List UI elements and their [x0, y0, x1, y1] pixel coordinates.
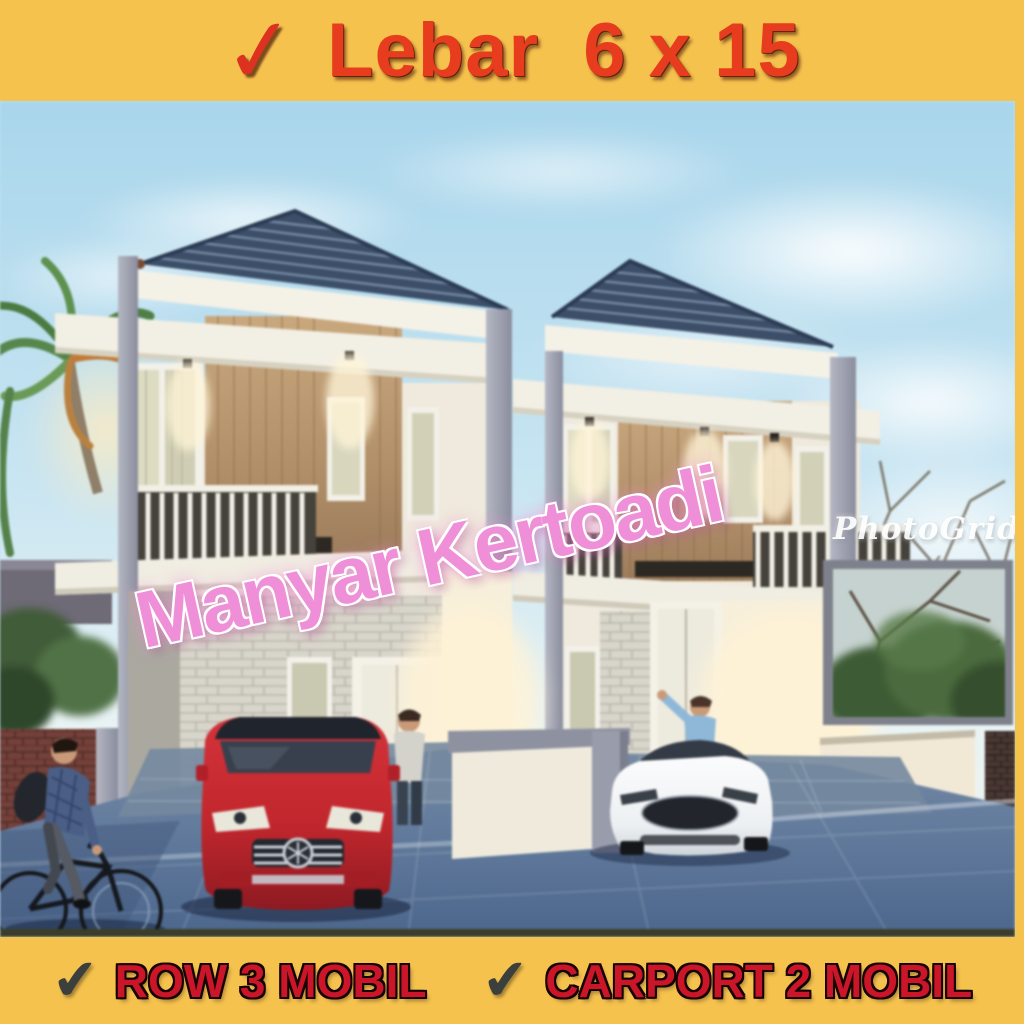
red-checkmark-icon: ✓ [219, 3, 302, 98]
divider-wall [448, 728, 630, 859]
black-checkmark-icon: ✔ [481, 951, 532, 1010]
feature-text: ROW 3 MOBIL [115, 954, 427, 1008]
feature-carport-2-mobil: ✔ CARPORT 2 MOBIL [482, 953, 972, 1009]
red-suv [181, 717, 411, 922]
black-checkmark-icon: ✔ [50, 951, 101, 1010]
promo-image-frame: ✓ Lebar 6 x 15 [0, 0, 1024, 1024]
top-banner: ✓ Lebar 6 x 15 [0, 0, 1024, 101]
feature-row-3-mobil: ✔ ROW 3 MOBIL [52, 953, 427, 1009]
house-rendering-photo: Manyar Kertoadi PhotoGrid [0, 101, 1015, 937]
feature-text: CARPORT 2 MOBIL [545, 954, 972, 1008]
bottom-banner: ✔ ROW 3 MOBIL ✔ CARPORT 2 MOBIL [0, 937, 1024, 1024]
photo-bottom-edge [0, 929, 1015, 937]
photogrid-watermark: PhotoGrid [833, 511, 1015, 547]
top-banner-text: Lebar 6 x 15 [327, 7, 801, 94]
